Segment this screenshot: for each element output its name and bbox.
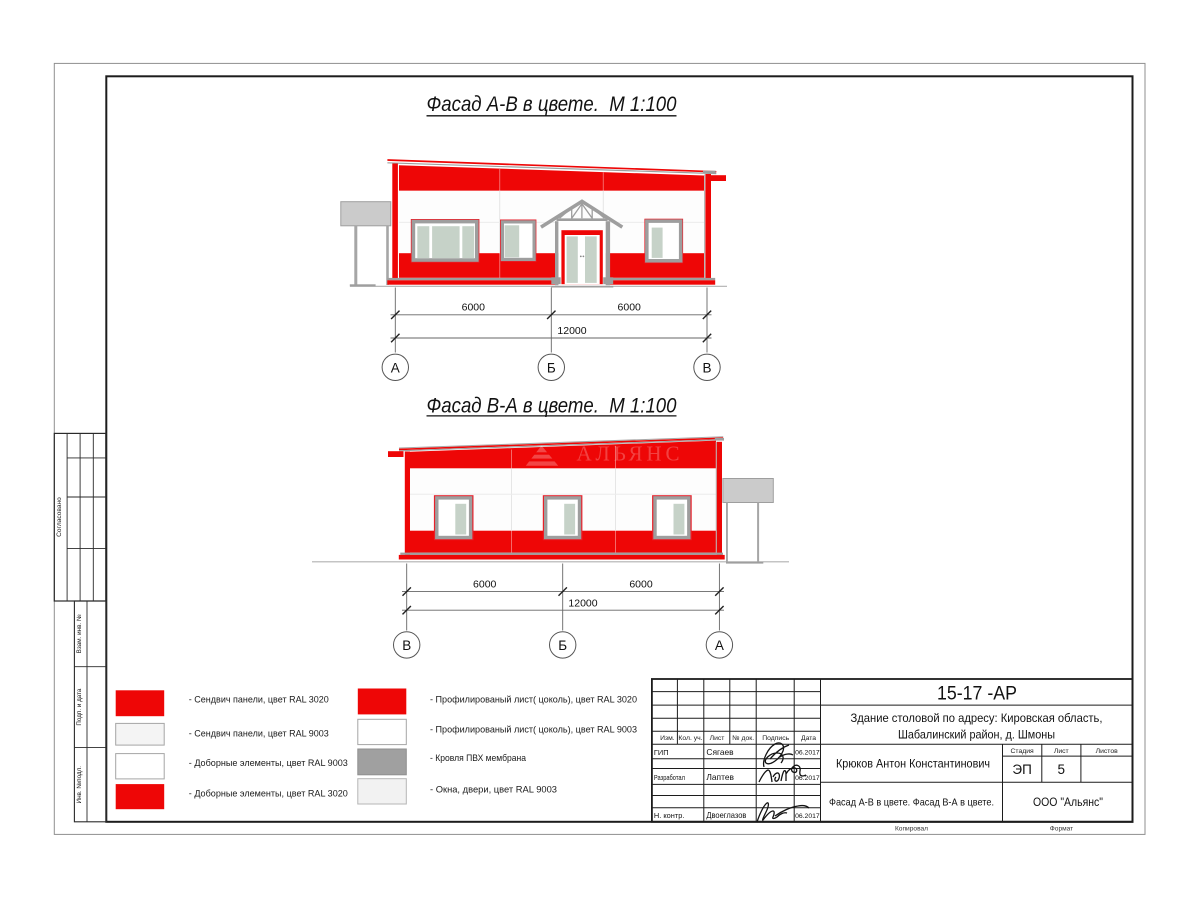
svg-text:Разработал: Разработал <box>654 773 685 782</box>
svg-text:Н. контр.: Н. контр. <box>654 811 685 820</box>
svg-text:- Доборные элементы, цвет RAL: - Доборные элементы, цвет RAL 3020 <box>189 788 348 799</box>
svg-text:Изм.: Изм. <box>660 735 675 742</box>
svg-text:- Сендвич панели, цвет RAL 900: - Сендвич панели, цвет RAL 9003 <box>189 729 329 740</box>
svg-text:Согласовано: Согласовано <box>56 497 63 537</box>
svg-text:Листов: Листов <box>1096 748 1118 755</box>
svg-text:5: 5 <box>1058 762 1066 777</box>
svg-text:- Окна, двери, цвет RAL 9003: - Окна, двери, цвет RAL 9003 <box>430 785 557 796</box>
svg-text:Стадия: Стадия <box>1011 748 1034 755</box>
svg-text:12000: 12000 <box>568 597 597 609</box>
svg-text:6000: 6000 <box>473 578 497 590</box>
svg-text:Здание столовой по адресу: Кир: Здание столовой по адресу: Кировская обл… <box>851 711 1103 725</box>
svg-text:Фасад В-А в цвете. М 1:100: Фасад В-А в цвете. М 1:100 <box>427 393 677 417</box>
svg-text:№ док.: № док. <box>732 735 754 742</box>
svg-text:Фасад А-В в цвете. Фасад В-А в: Фасад А-В в цвете. Фасад В-А в цвете. <box>829 798 994 809</box>
svg-text:Формат: Формат <box>1050 825 1073 832</box>
svg-text:ЭП: ЭП <box>1012 762 1031 777</box>
svg-text:В: В <box>702 360 711 375</box>
svg-text:06.2017: 06.2017 <box>795 775 820 782</box>
svg-text:6000: 6000 <box>629 578 653 590</box>
svg-text:Дата: Дата <box>801 735 816 742</box>
svg-text:- Доборные элементы, цвет RAL: - Доборные элементы, цвет RAL 9003 <box>189 758 348 769</box>
svg-text:Шабалинский район, д. Шмоны: Шабалинский район, д. Шмоны <box>898 728 1055 742</box>
svg-text:Сягаев: Сягаев <box>706 747 734 757</box>
svg-text:А: А <box>715 638 724 653</box>
svg-text:- Профилированый лист( цоколь): - Профилированый лист( цоколь), цвет RAL… <box>430 725 637 736</box>
svg-text:- Кровля ПВХ мембрана: - Кровля ПВХ мембрана <box>430 753 527 764</box>
svg-text:ООО "Альянс": ООО "Альянс" <box>1033 795 1103 809</box>
svg-text:12000: 12000 <box>557 325 586 337</box>
svg-text:Взам. инв. №: Взам. инв. № <box>76 614 83 653</box>
svg-text:Двоеглазов: Двоеглазов <box>706 810 746 820</box>
svg-text:Лист: Лист <box>1054 748 1069 755</box>
svg-text:Лаптев: Лаптев <box>706 772 734 782</box>
svg-text:Инв. №подл.: Инв. №подл. <box>76 766 83 804</box>
svg-text:Лист: Лист <box>710 735 725 742</box>
svg-text:Крюков Антон Константинович: Крюков Антон Константинович <box>836 757 990 771</box>
svg-text:Б: Б <box>558 638 567 653</box>
svg-text:ГИП: ГИП <box>654 748 669 757</box>
svg-text:В: В <box>402 638 411 653</box>
svg-text:06.2017: 06.2017 <box>795 813 820 820</box>
svg-text:Копировал: Копировал <box>895 825 928 832</box>
svg-text:Подпись: Подпись <box>762 735 789 742</box>
svg-text:06.2017: 06.2017 <box>795 750 820 757</box>
svg-text:Кол. уч.: Кол. уч. <box>678 735 702 742</box>
svg-text:Фасад А-В в цвете. М 1:100: Фасад А-В в цвете. М 1:100 <box>427 92 677 116</box>
svg-text:6000: 6000 <box>618 302 642 314</box>
svg-text:15-17 -АР: 15-17 -АР <box>937 683 1017 705</box>
svg-text:- Профилированый лист( цоколь): - Профилированый лист( цоколь), цвет RAL… <box>430 694 637 705</box>
svg-text:А: А <box>391 360 400 375</box>
svg-text:6000: 6000 <box>462 302 486 314</box>
svg-text:Б: Б <box>547 360 556 375</box>
svg-text:Подп. и дата: Подп. и дата <box>76 688 83 726</box>
svg-text:- Сендвич панели, цвет RAL 302: - Сендвич панели, цвет RAL 3020 <box>189 694 329 705</box>
